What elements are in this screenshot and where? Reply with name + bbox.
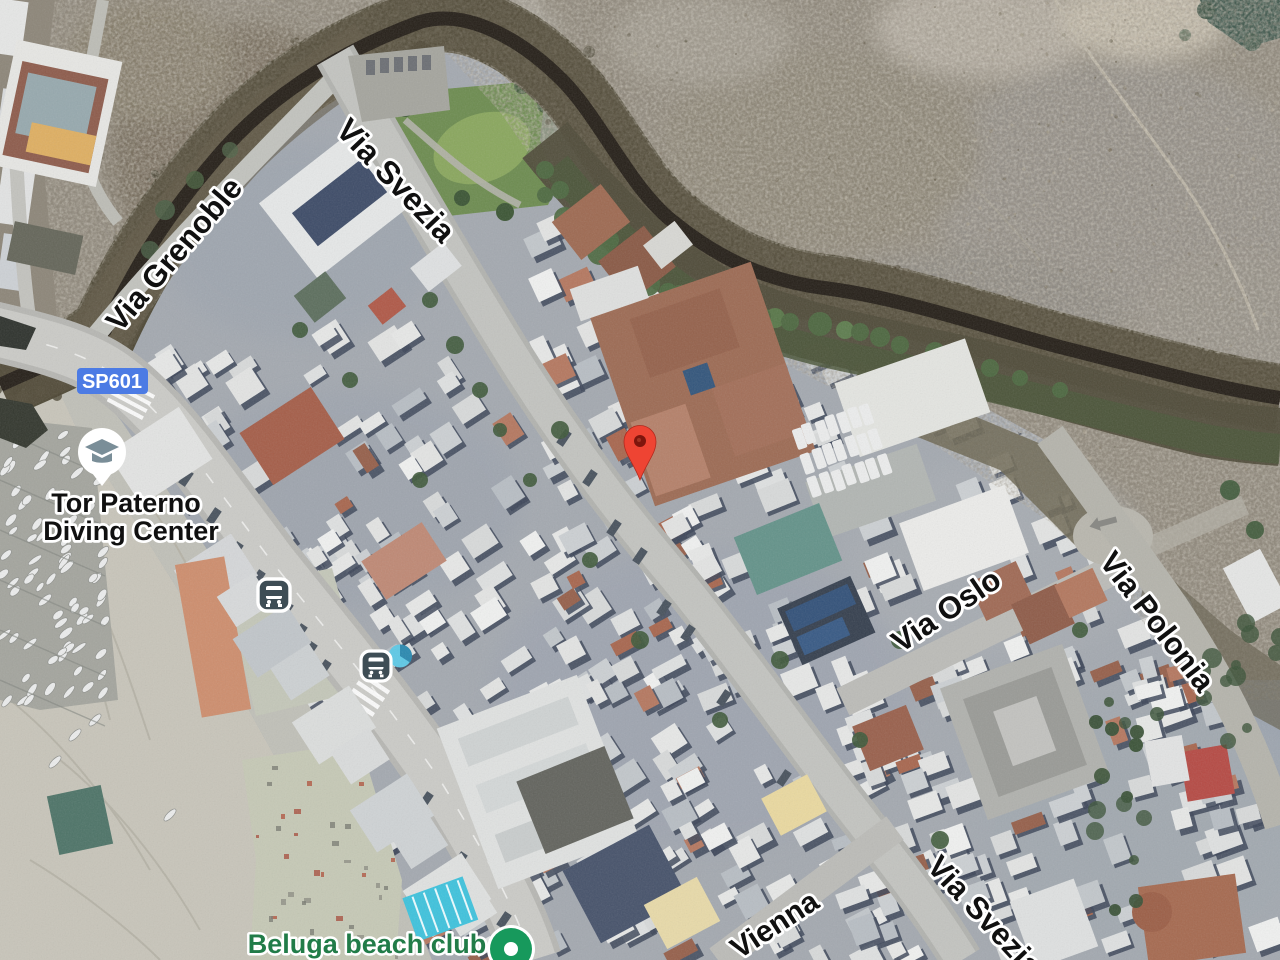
svg-text:Tor Paterno: Tor Paterno: [51, 488, 201, 518]
svg-text:Beluga beach club: Beluga beach club: [248, 929, 487, 959]
svg-text:Diving Center: Diving Center: [43, 516, 219, 546]
svg-text:SP601: SP601: [82, 371, 142, 393]
